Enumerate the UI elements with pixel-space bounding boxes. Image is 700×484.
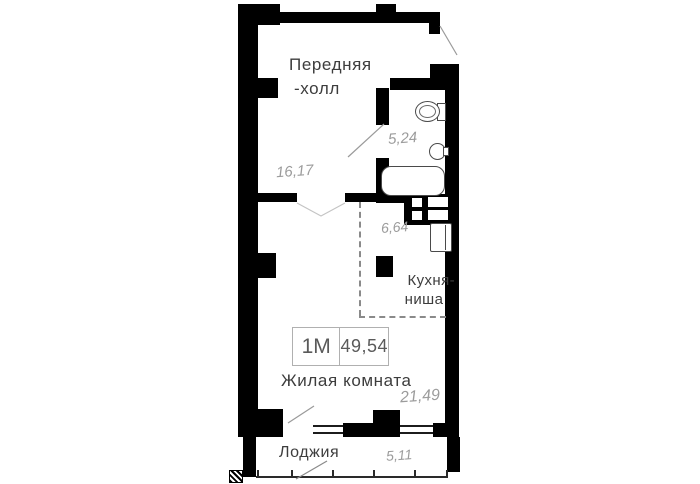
wall-entry-step bbox=[430, 64, 445, 78]
hall-label-line1: Передняя bbox=[289, 55, 372, 75]
wall-loggia-left bbox=[243, 437, 256, 477]
railing-tick bbox=[291, 470, 293, 478]
wall-bottom-mid bbox=[343, 423, 400, 437]
bathroom-door-swing-line bbox=[348, 124, 384, 157]
apartment-stamp: 1М 49,54 bbox=[292, 327, 389, 366]
railing-tick bbox=[373, 470, 375, 478]
kitchen-label-line2: ниша bbox=[393, 291, 455, 308]
floor-plan: Передняя -холл 16,17 5,24 6,64 Кухня- ни… bbox=[0, 0, 700, 484]
bathroom-area-value: 5,24 bbox=[387, 129, 417, 148]
vent-opening bbox=[412, 198, 422, 207]
balcony-door-swing-line bbox=[288, 406, 314, 423]
wall-divider-right bbox=[345, 193, 389, 202]
kitchen-area-value: 6,64 bbox=[380, 218, 408, 236]
living-room-area-value: 21,49 bbox=[399, 387, 440, 408]
sink-tap-icon bbox=[443, 147, 449, 156]
vent-opening bbox=[428, 197, 448, 207]
wall-loggia-right bbox=[447, 437, 460, 472]
vent-shaft bbox=[404, 194, 459, 225]
vent-opening bbox=[428, 210, 448, 220]
kitchen-niche-label: Кухня- ниша bbox=[393, 272, 455, 308]
fridge-icon bbox=[430, 223, 452, 252]
vent-opening bbox=[412, 211, 422, 220]
living-room-label: Жилая комната bbox=[281, 371, 412, 391]
loggia-railing bbox=[256, 476, 448, 478]
column-kitchen bbox=[376, 256, 393, 277]
wall-top-right-step bbox=[429, 23, 440, 34]
wall-bottom-left-bump bbox=[255, 409, 283, 424]
wall-top bbox=[280, 12, 440, 23]
wall-top-bump bbox=[376, 4, 396, 12]
kitchen-label-line1: Кухня- bbox=[393, 272, 455, 289]
wall-top-left-corner bbox=[238, 4, 280, 25]
hall-area-value: 16,17 bbox=[275, 162, 314, 182]
entry-door-swing-line bbox=[440, 26, 457, 55]
wall-bottom-mid-bump bbox=[373, 410, 400, 424]
kitchen-niche-boundary-horizontal bbox=[359, 316, 446, 318]
pilaster-left-top bbox=[258, 78, 278, 98]
kitchen-niche-boundary-vertical bbox=[359, 202, 361, 316]
railing-tick bbox=[414, 470, 416, 478]
wall-bottom-right bbox=[433, 423, 459, 437]
window-sill-left bbox=[313, 425, 343, 434]
passage-opening-marker bbox=[297, 203, 345, 216]
window-sill-right bbox=[400, 425, 433, 434]
apartment-type-value: 1М bbox=[293, 328, 340, 365]
wall-left bbox=[238, 4, 258, 437]
railing-tick bbox=[332, 470, 334, 478]
hall-label-line2: -холл bbox=[294, 79, 340, 99]
railing-tick bbox=[257, 470, 259, 478]
bathtub-icon bbox=[381, 166, 445, 196]
apartment-total-area-value: 49,54 bbox=[340, 328, 388, 365]
wall-section-hatch bbox=[229, 470, 243, 483]
railing-tick bbox=[446, 470, 448, 478]
toilet-icon bbox=[415, 101, 440, 122]
loggia-area-value: 5,11 bbox=[385, 446, 412, 464]
wall-divider-left bbox=[258, 193, 297, 202]
wall-bottom-left bbox=[238, 423, 283, 437]
column-left bbox=[258, 253, 276, 278]
wall-bathroom-left-upper bbox=[376, 88, 389, 125]
wall-bathroom-top bbox=[390, 78, 445, 90]
loggia-label: Лоджия bbox=[279, 444, 339, 462]
